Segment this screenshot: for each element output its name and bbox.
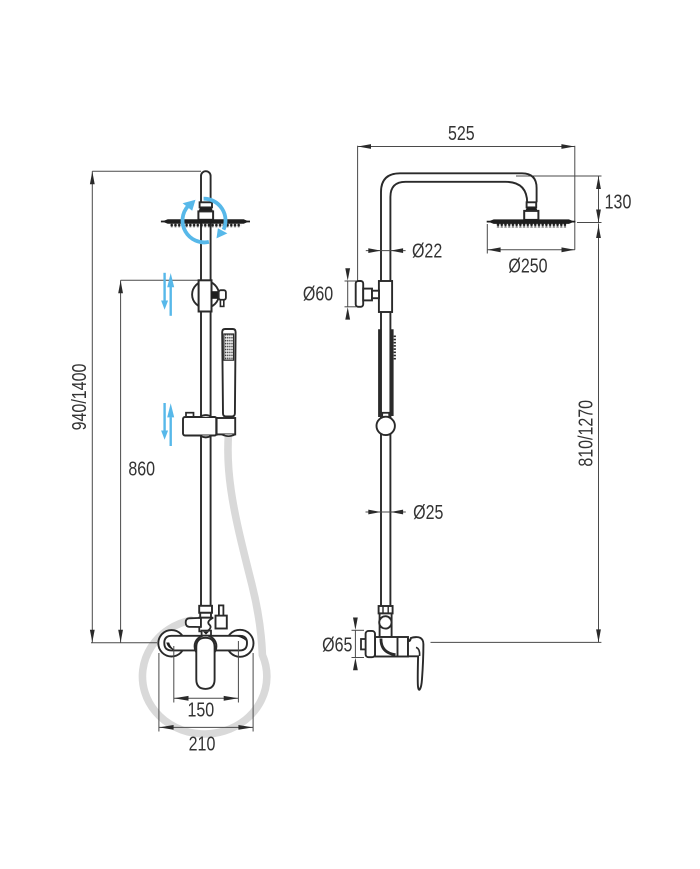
svg-text:Ø65: Ø65 — [322, 634, 352, 656]
svg-text:210: 210 — [189, 733, 216, 755]
svg-text:130: 130 — [605, 191, 632, 213]
svg-text:Ø22: Ø22 — [412, 240, 442, 262]
svg-text:Ø25: Ø25 — [413, 502, 443, 524]
svg-text:810/1270: 810/1270 — [575, 400, 597, 467]
svg-text:860: 860 — [128, 458, 155, 480]
svg-text:Ø60: Ø60 — [303, 283, 333, 305]
svg-text:150: 150 — [187, 699, 214, 721]
svg-text:940/1400: 940/1400 — [68, 364, 90, 431]
svg-text:525: 525 — [448, 123, 475, 145]
svg-text:Ø250: Ø250 — [508, 255, 547, 277]
